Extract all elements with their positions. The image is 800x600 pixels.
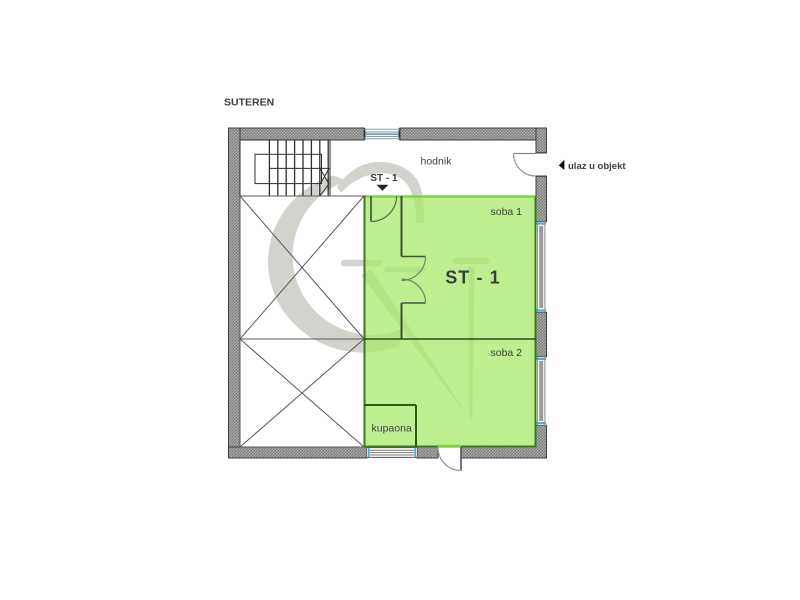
svg-text:kupaona: kupaona — [372, 423, 412, 435]
svg-text:ST - 1: ST - 1 — [370, 173, 398, 184]
svg-text:ST - 1: ST - 1 — [445, 268, 501, 288]
svg-text:soba 1: soba 1 — [491, 206, 523, 218]
svg-text:SUTEREN: SUTEREN — [224, 97, 274, 109]
svg-text:soba 2: soba 2 — [491, 347, 523, 359]
svg-text:hodnik: hodnik — [421, 156, 453, 168]
svg-text:ulaz u objekt: ulaz u objekt — [568, 161, 626, 172]
